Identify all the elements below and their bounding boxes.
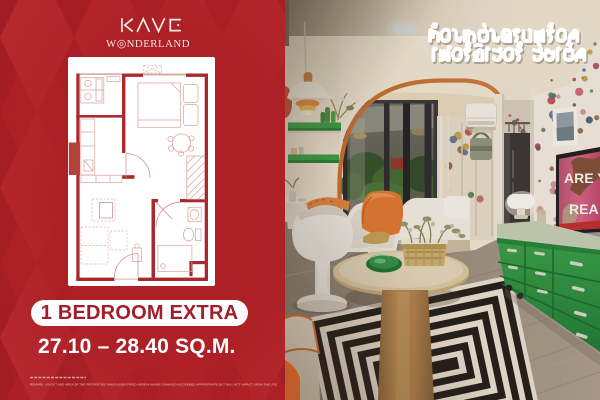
svg-text:REMARK: LAYOUT AND AREA OF THE: REMARK: LAYOUT AND AREA OF THE PROPERTIE… — [30, 383, 278, 387]
